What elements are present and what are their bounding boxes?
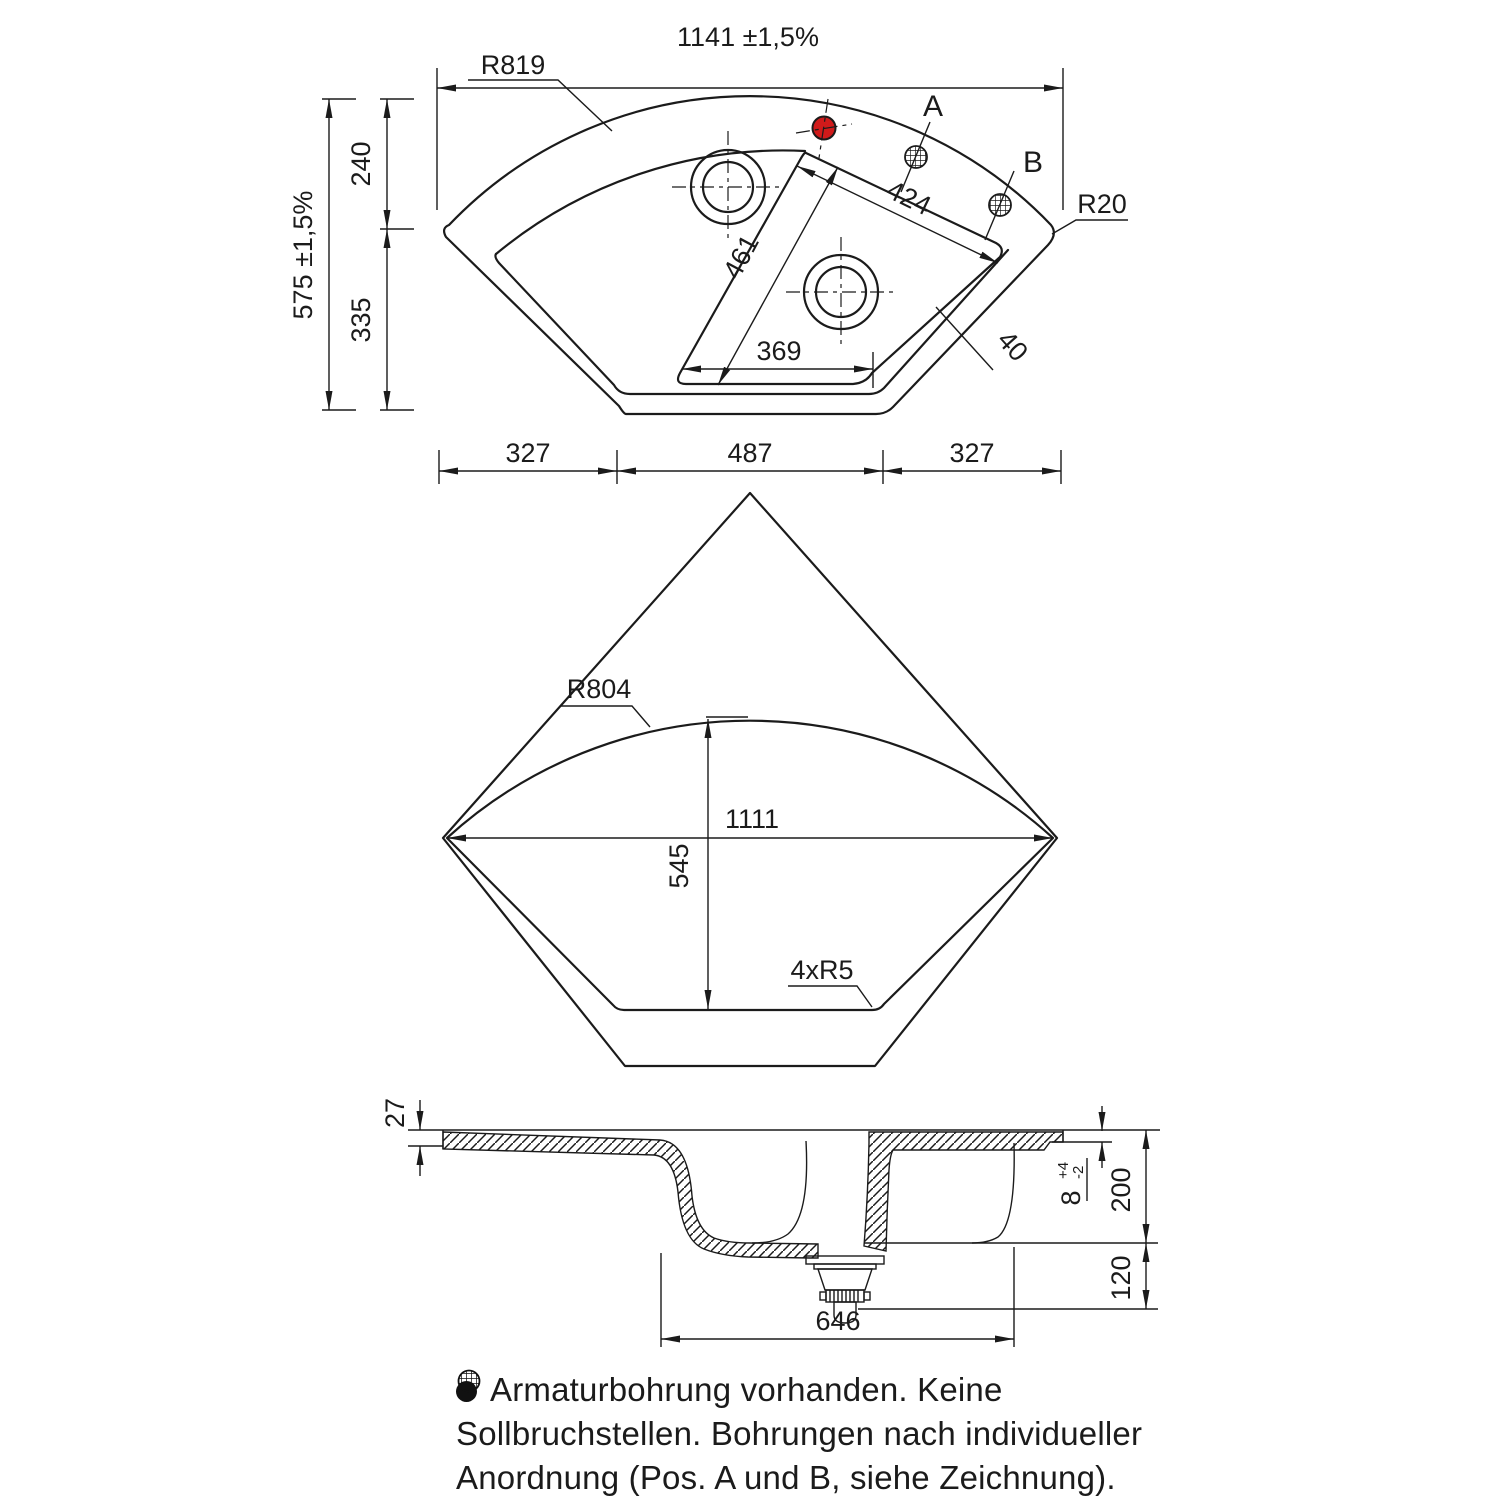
drill-position-b: B: [985, 146, 1043, 240]
cutout-outline: [447, 721, 1053, 1010]
note-line-2: Sollbruchstellen. Bohrungen nach individ…: [456, 1412, 1246, 1456]
basin-projection-curve: [752, 1141, 807, 1243]
svg-text:27: 27: [380, 1098, 410, 1128]
top-view: A B 1141 ±1,5% 575 ±1,5% 240 335: [288, 22, 1128, 484]
svg-text:1111: 1111: [725, 804, 779, 834]
dim-depth-200: 200: [1106, 1130, 1146, 1243]
drainer-hole: [672, 131, 784, 243]
faucet-hole-marker: [796, 99, 852, 158]
svg-text:-2: -2: [1070, 1166, 1087, 1179]
cutout-view: 1111 545 R804 4xR5: [443, 493, 1057, 1066]
label-r819: R819: [468, 50, 612, 131]
svg-text:327: 327: [949, 438, 994, 468]
dim-basin-369: 369: [682, 336, 873, 388]
svg-text:487: 487: [727, 438, 772, 468]
label-4xr5: 4xR5: [788, 955, 872, 1007]
svg-text:R20: R20: [1077, 189, 1127, 219]
dim-rim-27: 27: [380, 1098, 443, 1176]
svg-text:R819: R819: [481, 50, 546, 80]
section-left-body: [443, 1132, 818, 1258]
drawing-note: Armaturbohrung vorhanden. Keine Sollbruc…: [456, 1368, 1246, 1500]
note-line-3: Anordnung (Pos. A und B, siehe Zeichnung…: [456, 1456, 1246, 1500]
svg-text:240: 240: [346, 141, 376, 186]
label-pos-b: B: [1023, 146, 1043, 179]
svg-text:4xR5: 4xR5: [790, 955, 853, 985]
svg-text:R804: R804: [567, 674, 632, 704]
svg-text:40: 40: [991, 325, 1033, 367]
svg-text:575 ±1,5%: 575 ±1,5%: [288, 191, 318, 320]
svg-text:1141 ±1,5%: 1141 ±1,5%: [677, 22, 819, 52]
dim-rim-40: 40: [936, 307, 1034, 370]
svg-text:200: 200: [1106, 1167, 1136, 1212]
dim-height-240-335: 240 335: [346, 99, 414, 410]
diamond-outline: [443, 493, 1057, 1066]
dim-basin-424: 424: [797, 166, 998, 263]
svg-text:461: 461: [717, 230, 765, 284]
drill-position-icon: [456, 1368, 482, 1394]
technical-drawing-page: A B 1141 ±1,5% 575 ±1,5% 240 335: [0, 0, 1500, 1500]
section-view: 27 8 +4 -2 200 120: [380, 1098, 1160, 1347]
svg-text:335: 335: [346, 297, 376, 342]
small-bowl-curve: [972, 1143, 1014, 1243]
sink-drawing-svg: A B 1141 ±1,5% 575 ±1,5% 240 335: [0, 0, 1500, 1500]
dim-bottom-row: 327 487 327: [439, 438, 1061, 484]
dim-cutout-1111: 1111: [447, 804, 1053, 838]
dim-drain-120: 120: [858, 1243, 1158, 1309]
section-right-body: [864, 1132, 1063, 1251]
basin-drain-hole: [786, 237, 896, 347]
label-r804: R804: [560, 674, 650, 727]
svg-text:646: 646: [815, 1306, 860, 1336]
dim-cutout-545: 545: [664, 717, 748, 1009]
svg-text:327: 327: [505, 438, 550, 468]
svg-text:8: 8: [1056, 1190, 1086, 1205]
svg-text:120: 120: [1106, 1255, 1136, 1300]
svg-text:545: 545: [664, 843, 694, 888]
dim-step-8: 8 +4 -2: [1052, 1106, 1112, 1206]
sink-inner-rim: [495, 250, 1008, 394]
svg-text:369: 369: [756, 336, 801, 366]
svg-text:424: 424: [882, 175, 936, 222]
note-line-1: Armaturbohrung vorhanden. Keine: [456, 1368, 1246, 1412]
label-pos-a: A: [923, 90, 943, 123]
